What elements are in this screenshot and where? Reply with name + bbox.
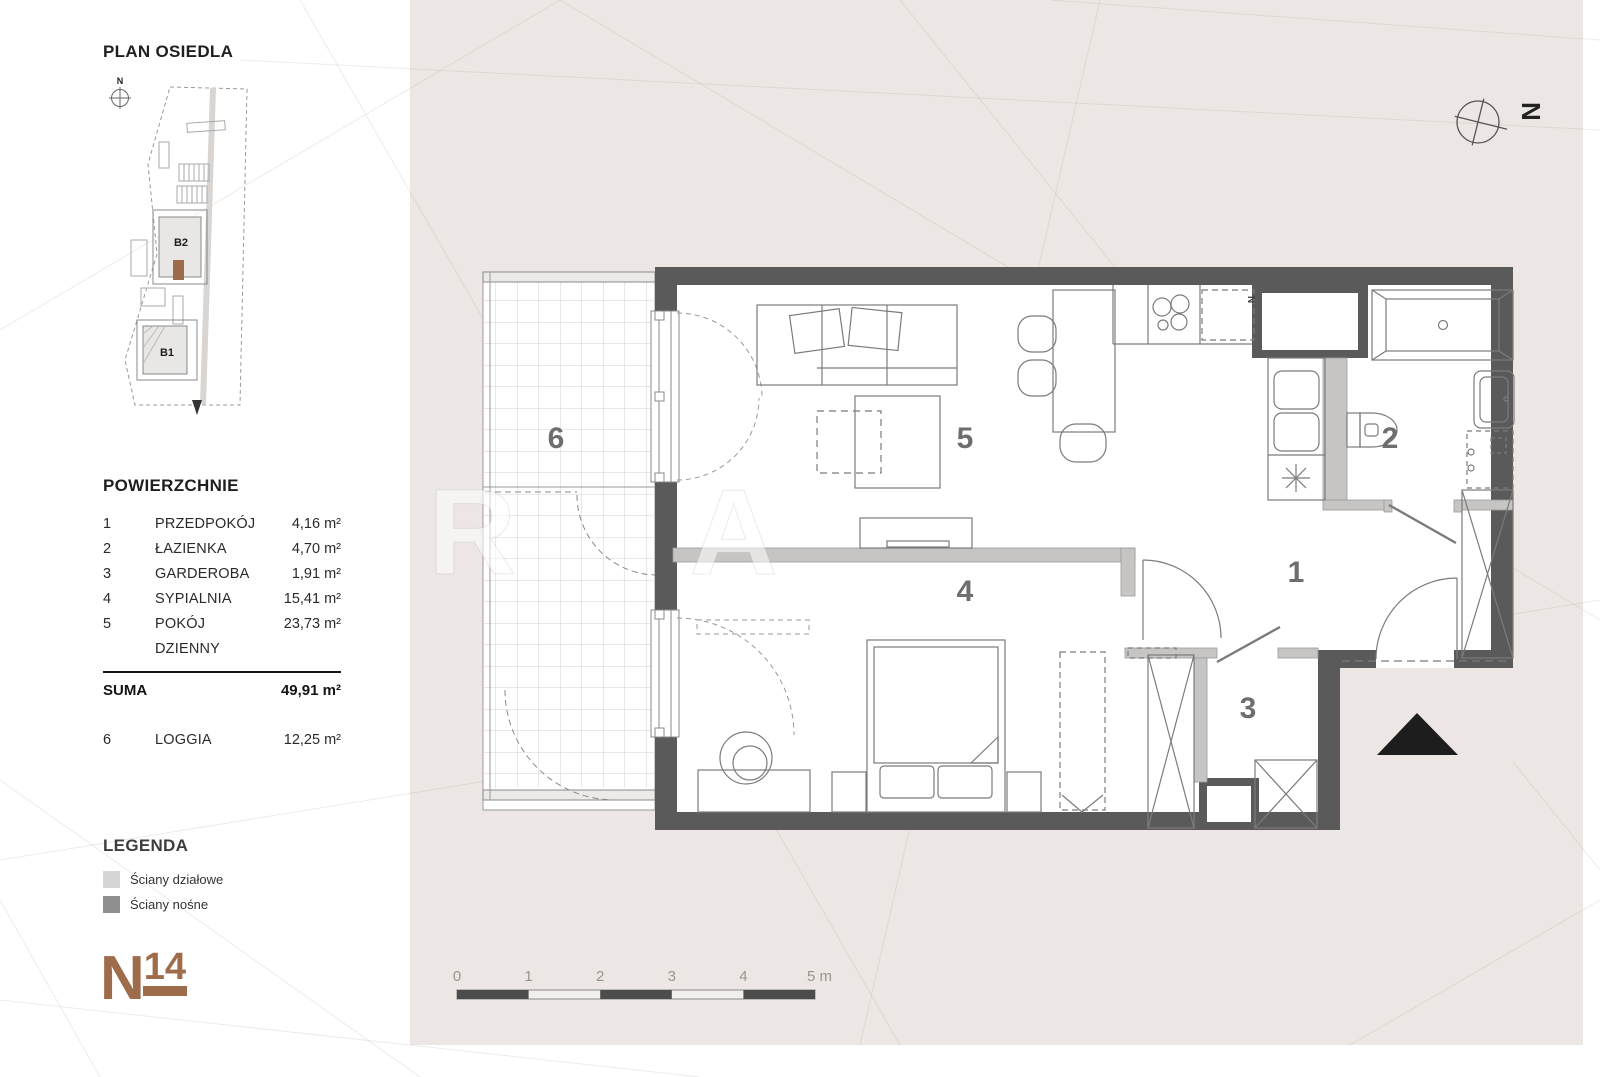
row-no: 6 [103,728,155,753]
row-name: POKÓJ DZIENNY [155,612,263,662]
suma-label: SUMA [103,680,281,702]
site-entrance-arrow [192,400,202,415]
legend-title: LEGENDA [103,836,223,856]
load-bearing-wall-swatch [103,896,120,913]
row-name: SYPIALNIA [155,587,263,612]
row-area: 4,70 m² [263,537,341,562]
row-area: 4,16 m² [263,512,341,537]
legend-item: Ściany działowe [103,871,223,888]
site-plan-map: N B2 [95,72,265,422]
legend: LEGENDA Ściany działowe Ściany nośne [103,836,223,921]
site-compass-label: N [117,76,124,86]
suma-value: 49,91 m² [281,680,341,702]
logo-number: 14 [143,948,187,996]
row-no: 2 [103,537,155,562]
row-name: LOGGIA [155,728,263,753]
row-name: GARDEROBA [155,562,263,587]
legend-item-label: Ściany nośne [130,897,208,912]
table-row: 2 ŁAZIENKA 4,70 m² [103,537,341,562]
table-row: 3 GARDEROBA 1,91 m² [103,562,341,587]
plan-background-panel [410,0,1583,1045]
loggia-row: 6 LOGGIA 12,25 m² [103,728,341,753]
site-road [203,88,213,404]
developer-logo: N14 [100,948,189,1016]
legend-item: Ściany nośne [103,896,223,913]
row-area: 12,25 m² [263,728,341,753]
row-no: 5 [103,612,155,662]
row-name: ŁAZIENKA [155,537,263,562]
areas-title: POWIERZCHNIE [103,476,341,496]
row-area: 15,41 m² [263,587,341,612]
row-area: 1,91 m² [263,562,341,587]
table-row: 5 POKÓJ DZIENNY 23,73 m² [103,612,341,662]
building-b1-label: B1 [160,347,174,359]
partition-wall-swatch [103,871,120,888]
table-row: 1 PRZEDPOKÓJ 4,16 m² [103,512,341,537]
row-no: 3 [103,562,155,587]
row-area: 23,73 m² [263,612,341,662]
row-name: PRZEDPOKÓJ [155,512,263,537]
building-b2-label: B2 [174,237,188,249]
table-row: 4 SYPIALNIA 15,41 m² [103,587,341,612]
logo-letter: N [100,944,145,1013]
highlighted-unit [173,260,184,280]
areas-table: POWIERZCHNIE 1 PRZEDPOKÓJ 4,16 m² 2 ŁAZI… [103,476,341,753]
legend-item-label: Ściany działowe [130,872,223,887]
row-no: 4 [103,587,155,612]
row-no: 1 [103,512,155,537]
site-plan-title: PLAN OSIEDLA [103,42,233,62]
sidebar: PLAN OSIEDLA N B2 [0,0,410,1077]
site-compass-icon [109,87,131,109]
suma-row: SUMA 49,91 m² [103,671,341,702]
